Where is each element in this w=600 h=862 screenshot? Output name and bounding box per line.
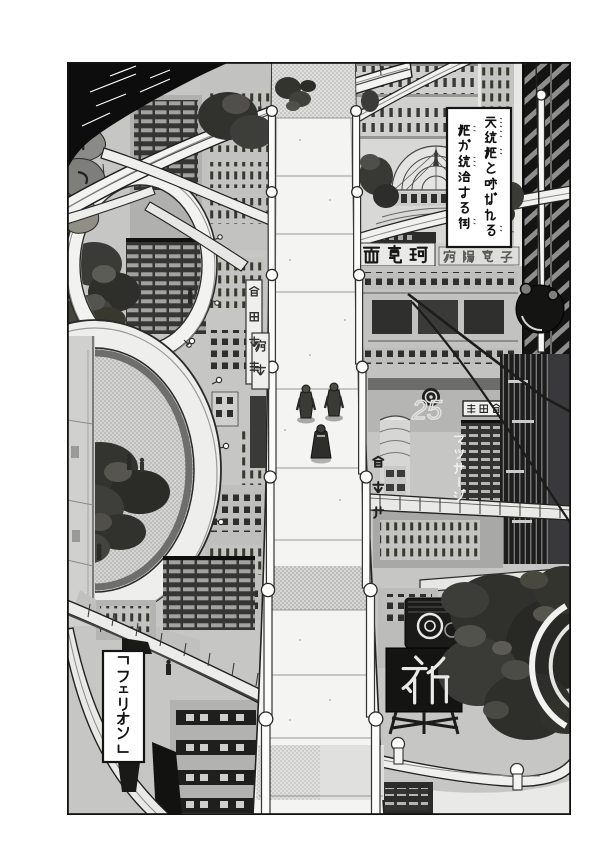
svg-text:25: 25 — [411, 395, 443, 425]
